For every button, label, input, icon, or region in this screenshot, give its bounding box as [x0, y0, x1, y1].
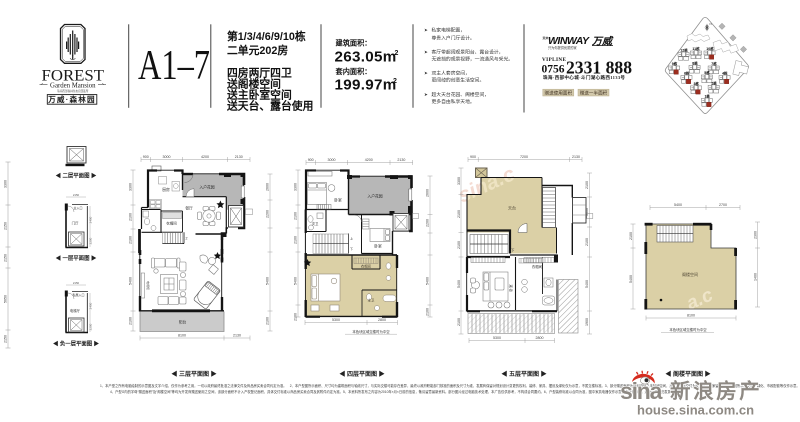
svg-text:N: N — [710, 22, 712, 26]
svg-text:电视柜: 电视柜 — [146, 281, 151, 290]
svg-text:2200: 2200 — [89, 323, 93, 330]
svg-text:四房两厅四卫: 四房两厅四卫 — [227, 66, 292, 80]
svg-text:下: 下 — [350, 247, 353, 251]
svg-text:1900: 1900 — [585, 318, 589, 326]
svg-text:卧室: 卧室 — [508, 284, 513, 292]
svg-text:餐厅: 餐厅 — [185, 206, 193, 211]
svg-text:2100: 2100 — [585, 181, 589, 189]
svg-text:263.05m: 263.05m — [335, 49, 397, 66]
svg-text:3000: 3000 — [328, 158, 336, 162]
svg-text:2: 2 — [393, 78, 397, 85]
svg-text:house.sina.com.cn: house.sina.com.cn — [637, 403, 754, 418]
svg-text:8100: 8100 — [687, 314, 695, 318]
svg-text:客厅带超阔观景阳台、露台设计，: 客厅带超阔观景阳台、露台设计， — [432, 49, 504, 56]
svg-text:5400: 5400 — [585, 280, 589, 288]
svg-text:◀ 三层平面图 ▶: ◀ 三层平面图 ▶ — [171, 370, 216, 378]
svg-text:双主人套房空间，: 双主人套房空间， — [432, 70, 470, 77]
svg-text:➤: ➤ — [424, 27, 428, 32]
svg-text:2100: 2100 — [294, 236, 298, 244]
svg-text:私家电梯配置，: 私家电梯配置， — [432, 26, 466, 33]
svg-text:5650: 5650 — [4, 295, 8, 303]
svg-text:2700: 2700 — [719, 203, 727, 207]
svg-text:◀ 五层平面图 ▶: ◀ 五层平面图 ▶ — [501, 370, 546, 378]
svg-text:本色块区域交楼时为中空: 本色块区域交楼时为中空 — [352, 329, 390, 334]
svg-text:卧室: 卧室 — [374, 244, 382, 249]
svg-text:建筑面积：: 建筑面积： — [336, 39, 372, 48]
svg-text:门厅: 门厅 — [72, 221, 79, 226]
svg-text:900: 900 — [470, 155, 476, 159]
svg-text:3000: 3000 — [163, 155, 171, 159]
svg-text:2100: 2100 — [426, 308, 430, 316]
svg-text:2130: 2130 — [235, 155, 243, 159]
svg-text:8100: 8100 — [178, 334, 186, 338]
svg-text:阳台: 阳台 — [179, 320, 187, 325]
svg-text:2800: 2800 — [536, 336, 544, 340]
svg-text:卧室: 卧室 — [334, 198, 342, 203]
svg-text:更多自由私享天地。: 更多自由私享天地。 — [432, 98, 475, 105]
svg-text:无遮挡的观景视野，一流通风与采光。: 无遮挡的观景视野，一流通风与采光。 — [432, 55, 514, 62]
svg-text:5300: 5300 — [493, 336, 501, 340]
svg-text:2130: 2130 — [572, 155, 580, 159]
svg-text:5400: 5400 — [294, 277, 298, 285]
svg-text:珠海·西部中心城·斗门湖心路西1133号: 珠海·西部中心城·斗门湖心路西1133号 — [543, 74, 625, 81]
svg-text:2100: 2100 — [457, 241, 461, 249]
svg-text:◀ 二层平面图 ▶: ◀ 二层平面图 ▶ — [56, 172, 97, 180]
svg-text:2130: 2130 — [233, 334, 241, 338]
svg-text:2150: 2150 — [4, 335, 8, 343]
svg-text:3300: 3300 — [4, 180, 8, 188]
svg-text:2150: 2150 — [73, 281, 80, 285]
svg-text:入户花园: 入户花园 — [367, 194, 382, 199]
svg-text:5400: 5400 — [674, 203, 682, 207]
svg-text:6栋: 6栋 — [684, 71, 690, 76]
svg-text:厨房: 厨房 — [162, 187, 170, 192]
svg-text:2100: 2100 — [129, 236, 133, 244]
svg-text:赠送一半面积: 赠送一半面积 — [580, 90, 608, 97]
svg-text:4200: 4200 — [201, 155, 209, 159]
svg-text:万威·森林园: 万威·森林园 — [47, 94, 96, 104]
svg-text:4200: 4200 — [365, 158, 373, 162]
svg-text:2400: 2400 — [89, 302, 93, 309]
svg-text:阁楼空间: 阁楼空间 — [682, 271, 698, 277]
svg-text:5400: 5400 — [426, 277, 430, 285]
svg-text:◀ 阁楼平面图 ▶: ◀ 阁楼平面图 ▶ — [665, 370, 710, 378]
svg-text:2150: 2150 — [73, 193, 80, 197]
svg-text:主卫: 主卫 — [368, 298, 375, 303]
svg-text:电梯厅: 电梯厅 — [70, 308, 81, 313]
svg-text:9栋: 9栋 — [672, 61, 678, 66]
svg-text:更阔绰的创意生活空间。: 更阔绰的创意生活空间。 — [432, 77, 485, 84]
svg-text:4栋: 4栋 — [722, 71, 728, 76]
svg-text:2栋: 2栋 — [711, 80, 717, 85]
svg-text:上: 上 — [350, 236, 353, 241]
svg-text:只为你提供优质的家: 只为你提供优质的家 — [548, 45, 577, 50]
svg-text:2100: 2100 — [457, 318, 461, 326]
svg-text:5400: 5400 — [266, 277, 270, 285]
svg-text:VIPLINE: VIPLINE — [542, 57, 567, 63]
svg-text:199.97m: 199.97m — [335, 76, 397, 93]
svg-text:2100: 2100 — [129, 213, 133, 221]
svg-text:送主卧室空间: 送主卧室空间 — [226, 88, 292, 102]
svg-text:1栋: 1栋 — [704, 94, 710, 99]
svg-text:2300: 2300 — [753, 231, 757, 239]
svg-text:入户花园: 入户花园 — [199, 185, 214, 190]
svg-text:主入口: 主入口 — [73, 205, 82, 210]
svg-text:3栋: 3栋 — [693, 81, 699, 86]
svg-text:赠送使用面积: 赠送使用面积 — [545, 90, 573, 97]
svg-text:7栋: 7栋 — [711, 61, 717, 66]
svg-text:套内面积：: 套内面积： — [336, 67, 372, 76]
svg-text:2800: 2800 — [378, 318, 386, 322]
svg-text:送天台、露台使用: 送天台、露台使用 — [226, 99, 313, 113]
svg-text:➤: ➤ — [424, 92, 428, 97]
svg-text:新浪房产: 新浪房产 — [670, 379, 762, 403]
svg-text:2: 2 — [186, 237, 188, 241]
svg-text:3300: 3300 — [294, 183, 298, 191]
svg-text:天木: 天木 — [543, 35, 549, 40]
svg-text:3300: 3300 — [129, 183, 133, 191]
svg-text:第1/3/4/6/9/10栋: 第1/3/4/6/9/10栋 — [227, 29, 306, 43]
svg-text:衣帽间: 衣帽间 — [166, 221, 177, 226]
svg-text:10栋: 10栋 — [706, 46, 714, 51]
svg-text:衣帽间: 衣帽间 — [361, 263, 372, 268]
svg-text:◀ 负一层平面图 ▶: ◀ 负一层平面图 ▶ — [53, 340, 100, 348]
svg-text:5400: 5400 — [629, 275, 633, 283]
svg-text:4、户型G内的字母“赠送面积”及“阁楼空间”等均为开发商赠送: 4、户型G内的字母“赠送面积”及“阁楼空间”等均为开发商赠送使用之空间，该部分面… — [110, 389, 684, 394]
svg-text:5400: 5400 — [457, 280, 461, 288]
svg-text:二单元202房: 二单元202房 — [227, 43, 288, 57]
svg-text:2: 2 — [395, 50, 399, 57]
svg-text:5400: 5400 — [129, 277, 133, 285]
svg-text:本色块区域交楼时为中空: 本色块区域交楼时为中空 — [669, 327, 707, 332]
svg-text:2100: 2100 — [629, 232, 633, 240]
svg-text:2100: 2100 — [585, 238, 589, 246]
svg-text:尊贵入户门厅设计。: 尊贵入户门厅设计。 — [432, 35, 475, 42]
svg-text:2200: 2200 — [266, 210, 270, 218]
svg-text:1400: 1400 — [753, 273, 757, 281]
svg-text:5栋: 5栋 — [704, 70, 710, 75]
svg-text:0756: 0756 — [542, 64, 565, 76]
svg-text:◀ 一层平面图 ▶: ◀ 一层平面图 ▶ — [56, 254, 97, 262]
svg-text:次卫: 次卫 — [312, 221, 319, 226]
svg-text:私属入口: 私属入口 — [72, 292, 84, 297]
svg-text:➤: ➤ — [424, 50, 428, 55]
svg-text:7200: 7200 — [520, 155, 528, 159]
svg-text:超大天台花园、阁楼空间，: 超大天台花园、阁楼空间， — [432, 91, 490, 98]
svg-text:5300: 5300 — [332, 318, 340, 322]
svg-text:2100: 2100 — [266, 317, 270, 325]
svg-text:珠海西部森林生态官邸荟所: 珠海西部森林生态官邸荟所 — [57, 89, 89, 93]
svg-text:送阁楼空间: 送阁楼空间 — [226, 77, 281, 91]
svg-text:2150: 2150 — [4, 222, 8, 230]
svg-text:2130: 2130 — [397, 158, 405, 162]
svg-text:2150: 2150 — [4, 254, 8, 262]
svg-text:2100: 2100 — [294, 212, 298, 220]
svg-text:3300: 3300 — [457, 177, 461, 185]
svg-text:衣帽间: 衣帽间 — [532, 264, 543, 269]
svg-text:2200: 2200 — [426, 219, 430, 227]
svg-text:2400: 2400 — [89, 216, 93, 223]
svg-text:➤: ➤ — [424, 71, 428, 76]
svg-text:900: 900 — [143, 155, 149, 159]
svg-text:2600: 2600 — [426, 189, 430, 197]
svg-text:8栋: 8栋 — [692, 60, 698, 65]
svg-text:2100: 2100 — [457, 210, 461, 218]
svg-text:11栋: 11栋 — [692, 46, 700, 51]
svg-text:◀ 四层平面图 ▶: ◀ 四层平面图 ▶ — [339, 370, 384, 378]
svg-text:天台: 天台 — [508, 205, 516, 211]
svg-text:Garden Mansion: Garden Mansion — [50, 83, 96, 90]
svg-text:2600: 2600 — [266, 183, 270, 191]
svg-text:2100: 2100 — [129, 317, 133, 325]
svg-text:2200: 2200 — [89, 237, 93, 244]
svg-text:A1–7: A1–7 — [138, 43, 210, 89]
svg-text:2100: 2100 — [294, 313, 298, 321]
svg-text:900: 900 — [308, 158, 314, 162]
svg-text:12栋: 12栋 — [680, 48, 688, 53]
